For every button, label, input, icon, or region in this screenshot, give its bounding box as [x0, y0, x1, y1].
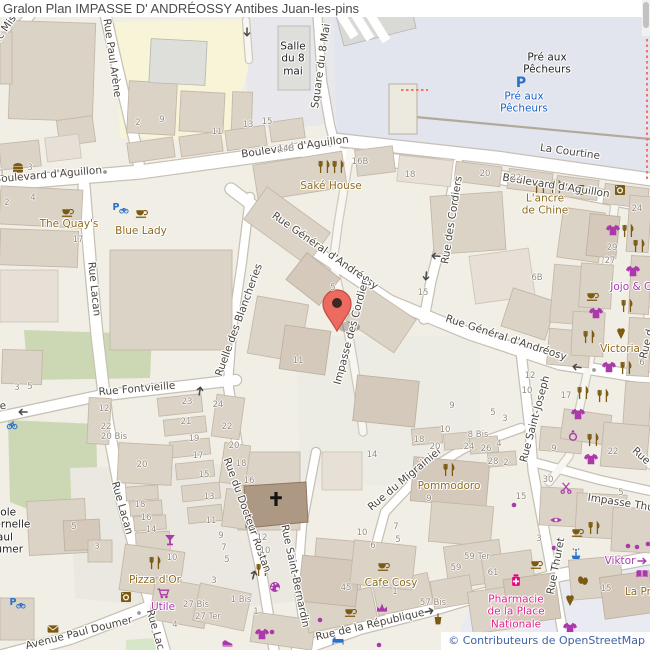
building: [599, 571, 650, 620]
book-icon: [636, 570, 647, 577]
green-strip: [126, 638, 156, 650]
building: [179, 91, 225, 133]
building: [571, 311, 605, 357]
dot-icon: [552, 546, 557, 551]
building: [149, 39, 207, 86]
building: [503, 573, 561, 626]
map-page: P P: [0, 0, 650, 650]
building: [1, 349, 42, 384]
building: [600, 422, 650, 470]
title-bar: Gralon Plan IMPASSE D' ANDRÉOSSY Antibes…: [0, 0, 650, 17]
mail-icon: [48, 625, 59, 632]
building: [130, 500, 163, 516]
building: [0, 229, 79, 268]
building: [487, 451, 516, 467]
gdot-icon: [149, 613, 153, 617]
pier: [389, 84, 417, 134]
building: [586, 214, 620, 259]
building: [0, 270, 58, 322]
building: [110, 250, 232, 350]
building: [430, 192, 506, 255]
scrollbar[interactable]: [642, 0, 650, 36]
building: [187, 504, 222, 523]
dot-icon: [270, 630, 275, 635]
map-canvas[interactable]: P P: [0, 0, 650, 650]
building: [397, 155, 453, 187]
gdot-icon: [592, 368, 596, 372]
building: [0, 186, 83, 228]
parking-icon: [516, 75, 526, 91]
building: [0, 32, 12, 84]
building: [410, 457, 490, 507]
building: [175, 460, 214, 480]
scrollbar-thumb[interactable]: [643, 2, 649, 28]
building: [45, 134, 82, 162]
building: [443, 432, 472, 450]
building: [411, 427, 442, 446]
building: [611, 507, 650, 553]
building: [8, 21, 95, 122]
beer-icon: [578, 185, 584, 195]
building: [322, 452, 362, 490]
dot-icon: [318, 618, 323, 623]
road: [246, 20, 249, 60]
gdot-icon: [137, 611, 141, 615]
building: [127, 81, 178, 135]
dot-icon: [512, 503, 517, 508]
building: [117, 443, 173, 486]
building: [626, 195, 650, 252]
building: [355, 146, 396, 176]
church: [244, 482, 308, 528]
palette-icon: [270, 582, 280, 592]
building: [279, 325, 331, 375]
building: [278, 26, 310, 90]
building: [469, 436, 498, 454]
building: [428, 501, 493, 546]
dot-icon: [635, 545, 640, 550]
attribution[interactable]: © Contributeurs de OpenStreetMap: [441, 632, 650, 650]
building: [0, 598, 34, 640]
laundry-icon: [121, 592, 131, 602]
building: [579, 263, 614, 309]
gdot-icon: [103, 170, 107, 174]
building: [211, 394, 245, 439]
building: [231, 92, 252, 131]
dot-icon: [626, 544, 631, 549]
building: [219, 442, 250, 485]
building: [269, 118, 305, 143]
building: [181, 482, 220, 502]
building: [87, 397, 111, 444]
building: [353, 375, 419, 427]
building: [134, 515, 167, 531]
laundry-icon: [615, 185, 625, 195]
building: [88, 540, 112, 562]
burger-icon: [13, 163, 23, 173]
page-title: Gralon Plan IMPASSE D' ANDRÉOSSY Antibes…: [3, 1, 359, 16]
building: [126, 485, 159, 501]
dot-icon: [377, 643, 382, 648]
